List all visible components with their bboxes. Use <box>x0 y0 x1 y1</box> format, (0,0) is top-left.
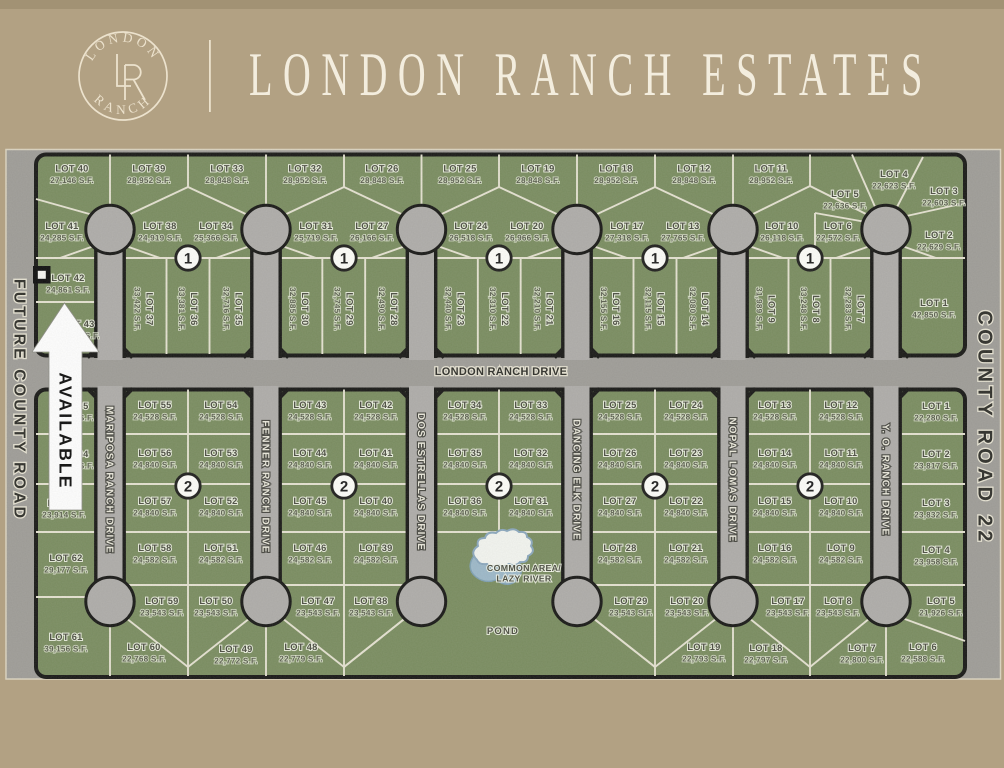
svg-text:LONDON RANCH ESTATES: LONDON RANCH ESTATES <box>249 41 933 109</box>
